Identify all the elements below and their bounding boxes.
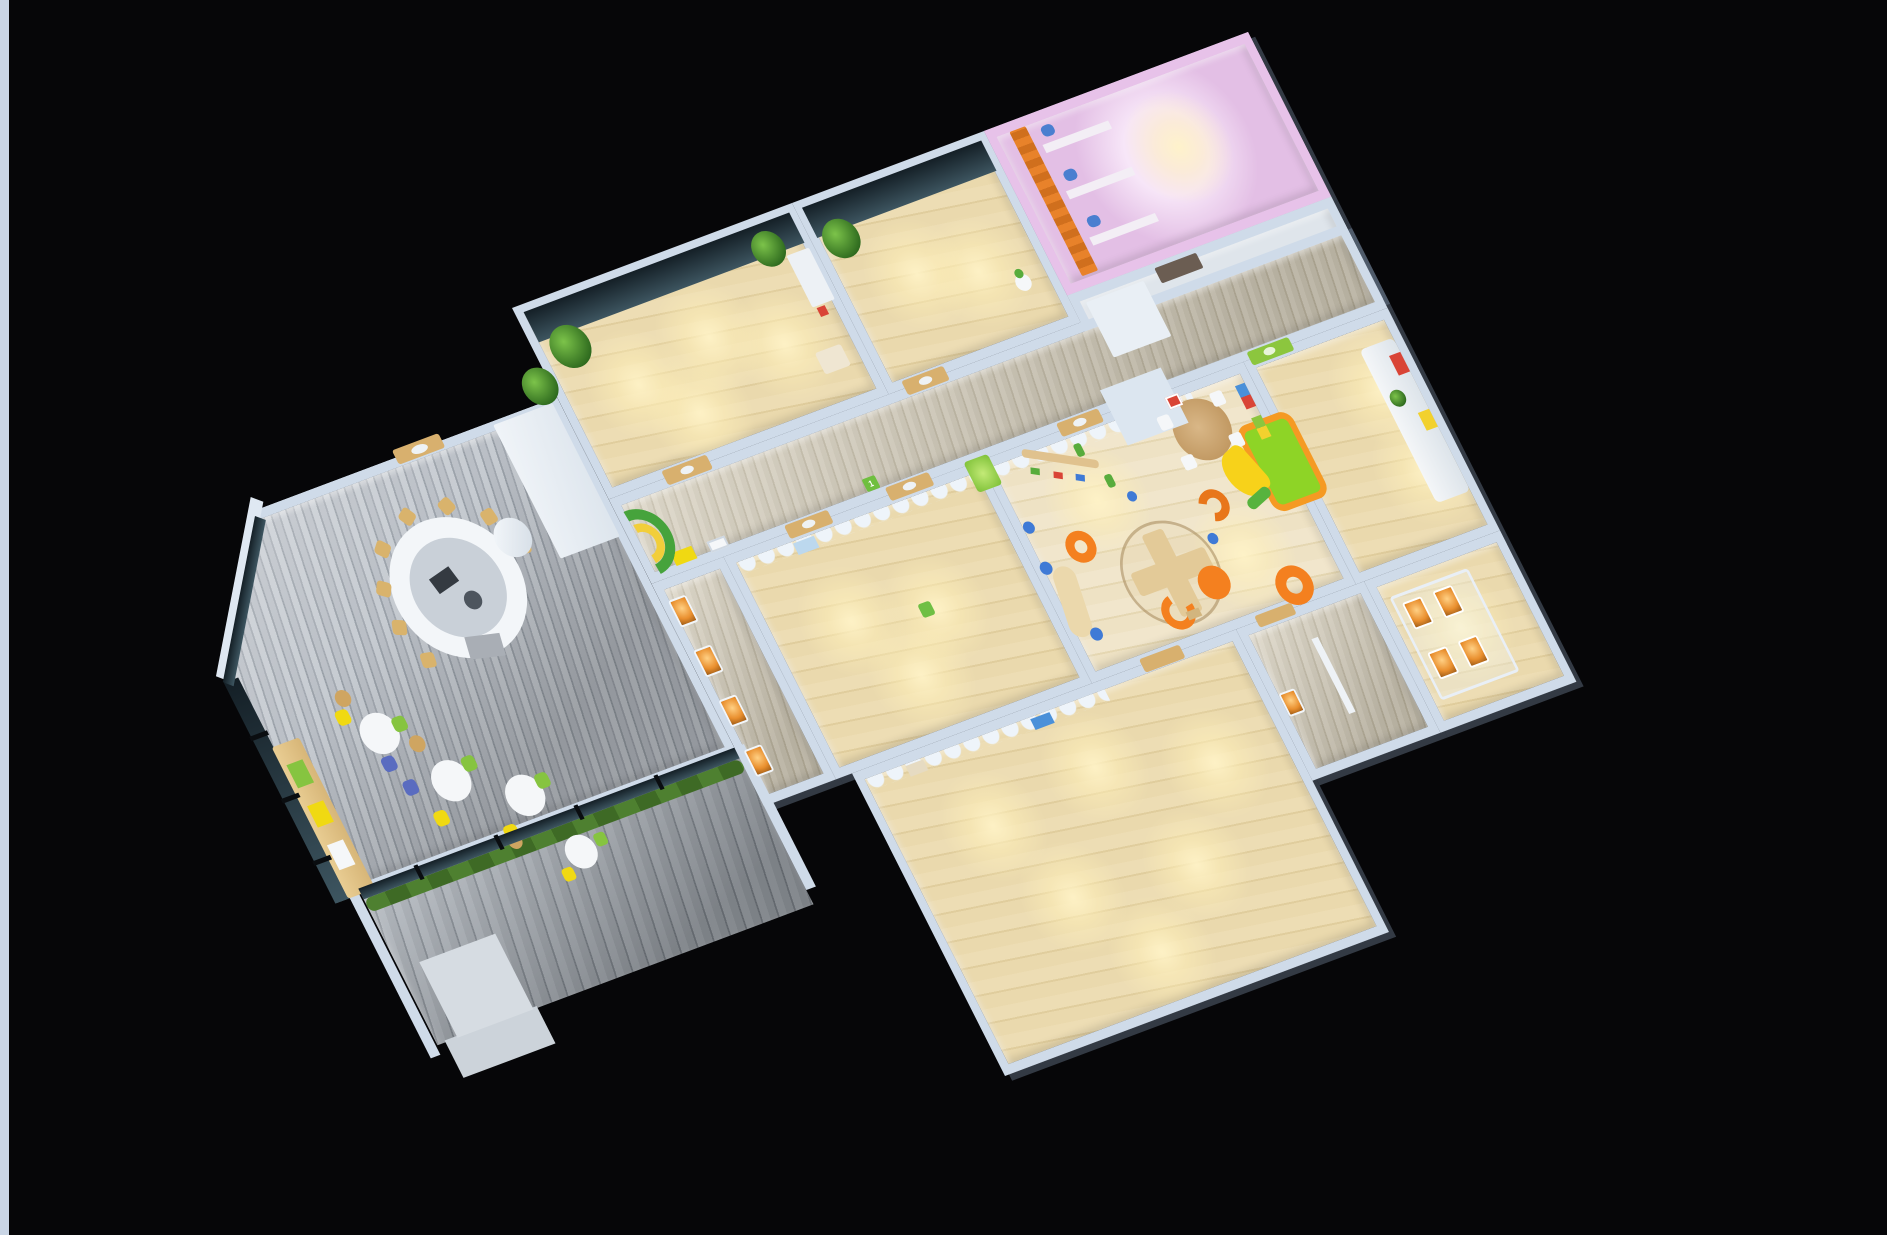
floorplan: 1 [88, 17, 1702, 1235]
left-edge-strip [0, 0, 9, 1235]
beam-block-blue [1076, 474, 1085, 482]
stool-2 [391, 620, 407, 636]
beam-block-red [1053, 471, 1062, 479]
floorplan-render: 1 [0, 0, 1887, 1235]
reception-desk-gap [464, 633, 506, 660]
beam-block-green [1030, 467, 1039, 475]
